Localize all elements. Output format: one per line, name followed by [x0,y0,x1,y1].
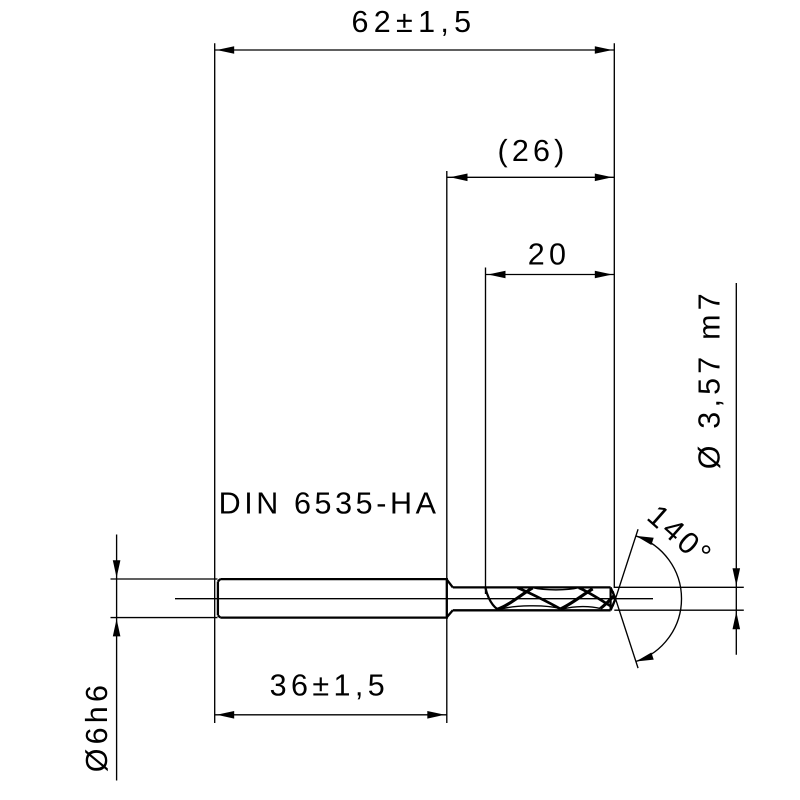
svg-text:36±1,5: 36±1,5 [270,669,389,703]
svg-text:DIN 6535-HA: DIN 6535-HA [219,486,440,520]
svg-text:20: 20 [528,238,570,272]
svg-text:Ø6h6: Ø6h6 [80,681,114,772]
svg-text:Ø 3,57 m7: Ø 3,57 m7 [692,289,726,469]
svg-text:(26): (26) [498,134,569,168]
svg-text:62±1,5: 62±1,5 [352,5,477,39]
